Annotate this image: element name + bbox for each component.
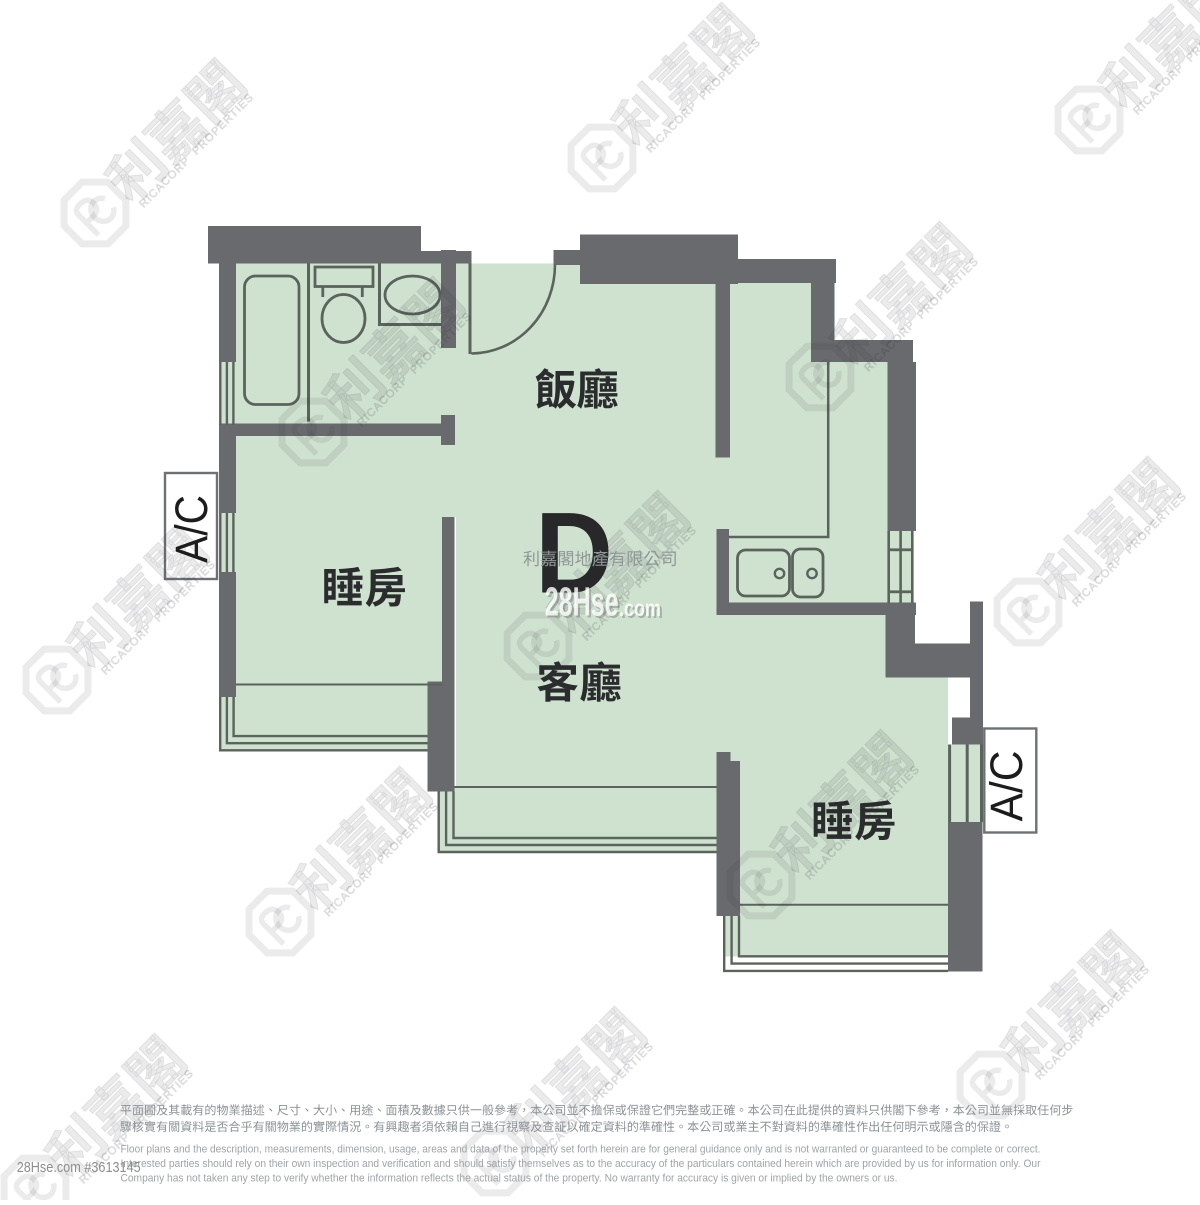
svg-text:Company has not taken any step: Company has not taken any step to verify…: [121, 1173, 898, 1185]
svg-text:28Hse.com #3613145: 28Hse.com #3613145: [17, 1160, 141, 1176]
svg-text:A/C: A/C: [981, 751, 1032, 822]
svg-text:.com: .com: [619, 595, 661, 621]
svg-text:Floor plans and the descriptio: Floor plans and the description, measure…: [121, 1144, 1041, 1156]
svg-text:Interested parties should rely: Interested parties should rely on their …: [121, 1158, 1041, 1170]
svg-text:28Hse: 28Hse: [545, 579, 619, 625]
